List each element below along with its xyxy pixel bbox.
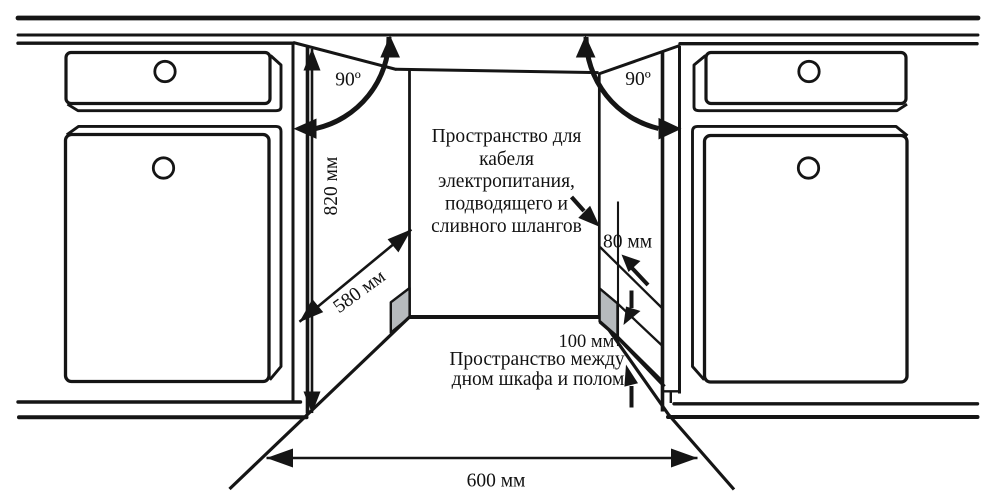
svg-text:90º: 90º bbox=[335, 70, 361, 91]
svg-text:Пространство между: Пространство между bbox=[449, 349, 625, 370]
svg-text:80 мм: 80 мм bbox=[603, 232, 652, 253]
svg-text:электропитания,: электропитания, bbox=[438, 171, 575, 192]
svg-text:820 мм: 820 мм bbox=[321, 157, 342, 216]
svg-text:кабеля: кабеля bbox=[479, 149, 534, 170]
svg-text:подводящего и: подводящего и bbox=[445, 194, 568, 215]
svg-text:600 мм: 600 мм bbox=[467, 471, 526, 492]
svg-text:сливного шлангов: сливного шлангов bbox=[431, 216, 582, 237]
svg-text:Пространство для: Пространство для bbox=[432, 126, 582, 147]
svg-text:90º: 90º bbox=[625, 69, 651, 90]
svg-text:дном шкафа и полом: дном шкафа и полом bbox=[452, 369, 625, 390]
